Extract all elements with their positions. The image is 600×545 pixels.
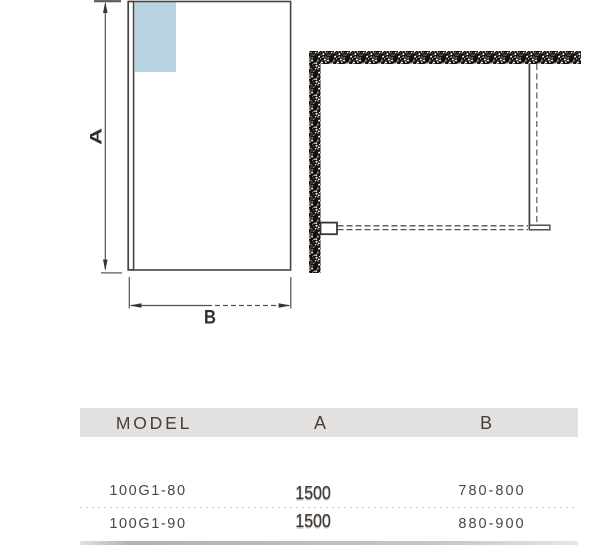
svg-text:A: A — [86, 128, 105, 145]
svg-text:B: B — [204, 306, 216, 328]
